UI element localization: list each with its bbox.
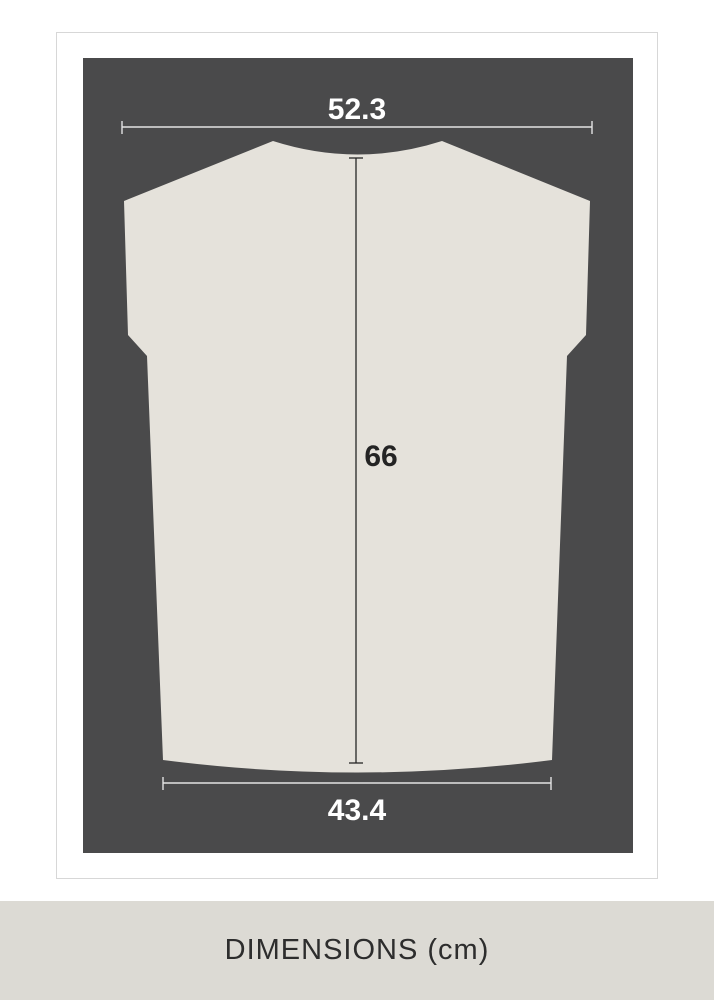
top-width-value-label: 52.3 — [328, 93, 386, 126]
length-value-label: 66 — [364, 440, 397, 473]
dimensions-caption-bar: DIMENSIONS (cm) — [0, 901, 714, 1000]
diagram-panel: 52.3 66 43.4 — [83, 58, 633, 853]
tshirt-silhouette — [124, 141, 590, 773]
garment-diagram: 52.3 66 43.4 — [83, 58, 633, 853]
product-dimensions-card: 52.3 66 43.4 — [56, 32, 658, 879]
dimensions-caption-label: DIMENSIONS (cm) — [225, 934, 490, 967]
bottom-width-dimension-line — [163, 777, 551, 790]
bottom-width-value-label: 43.4 — [328, 794, 387, 827]
